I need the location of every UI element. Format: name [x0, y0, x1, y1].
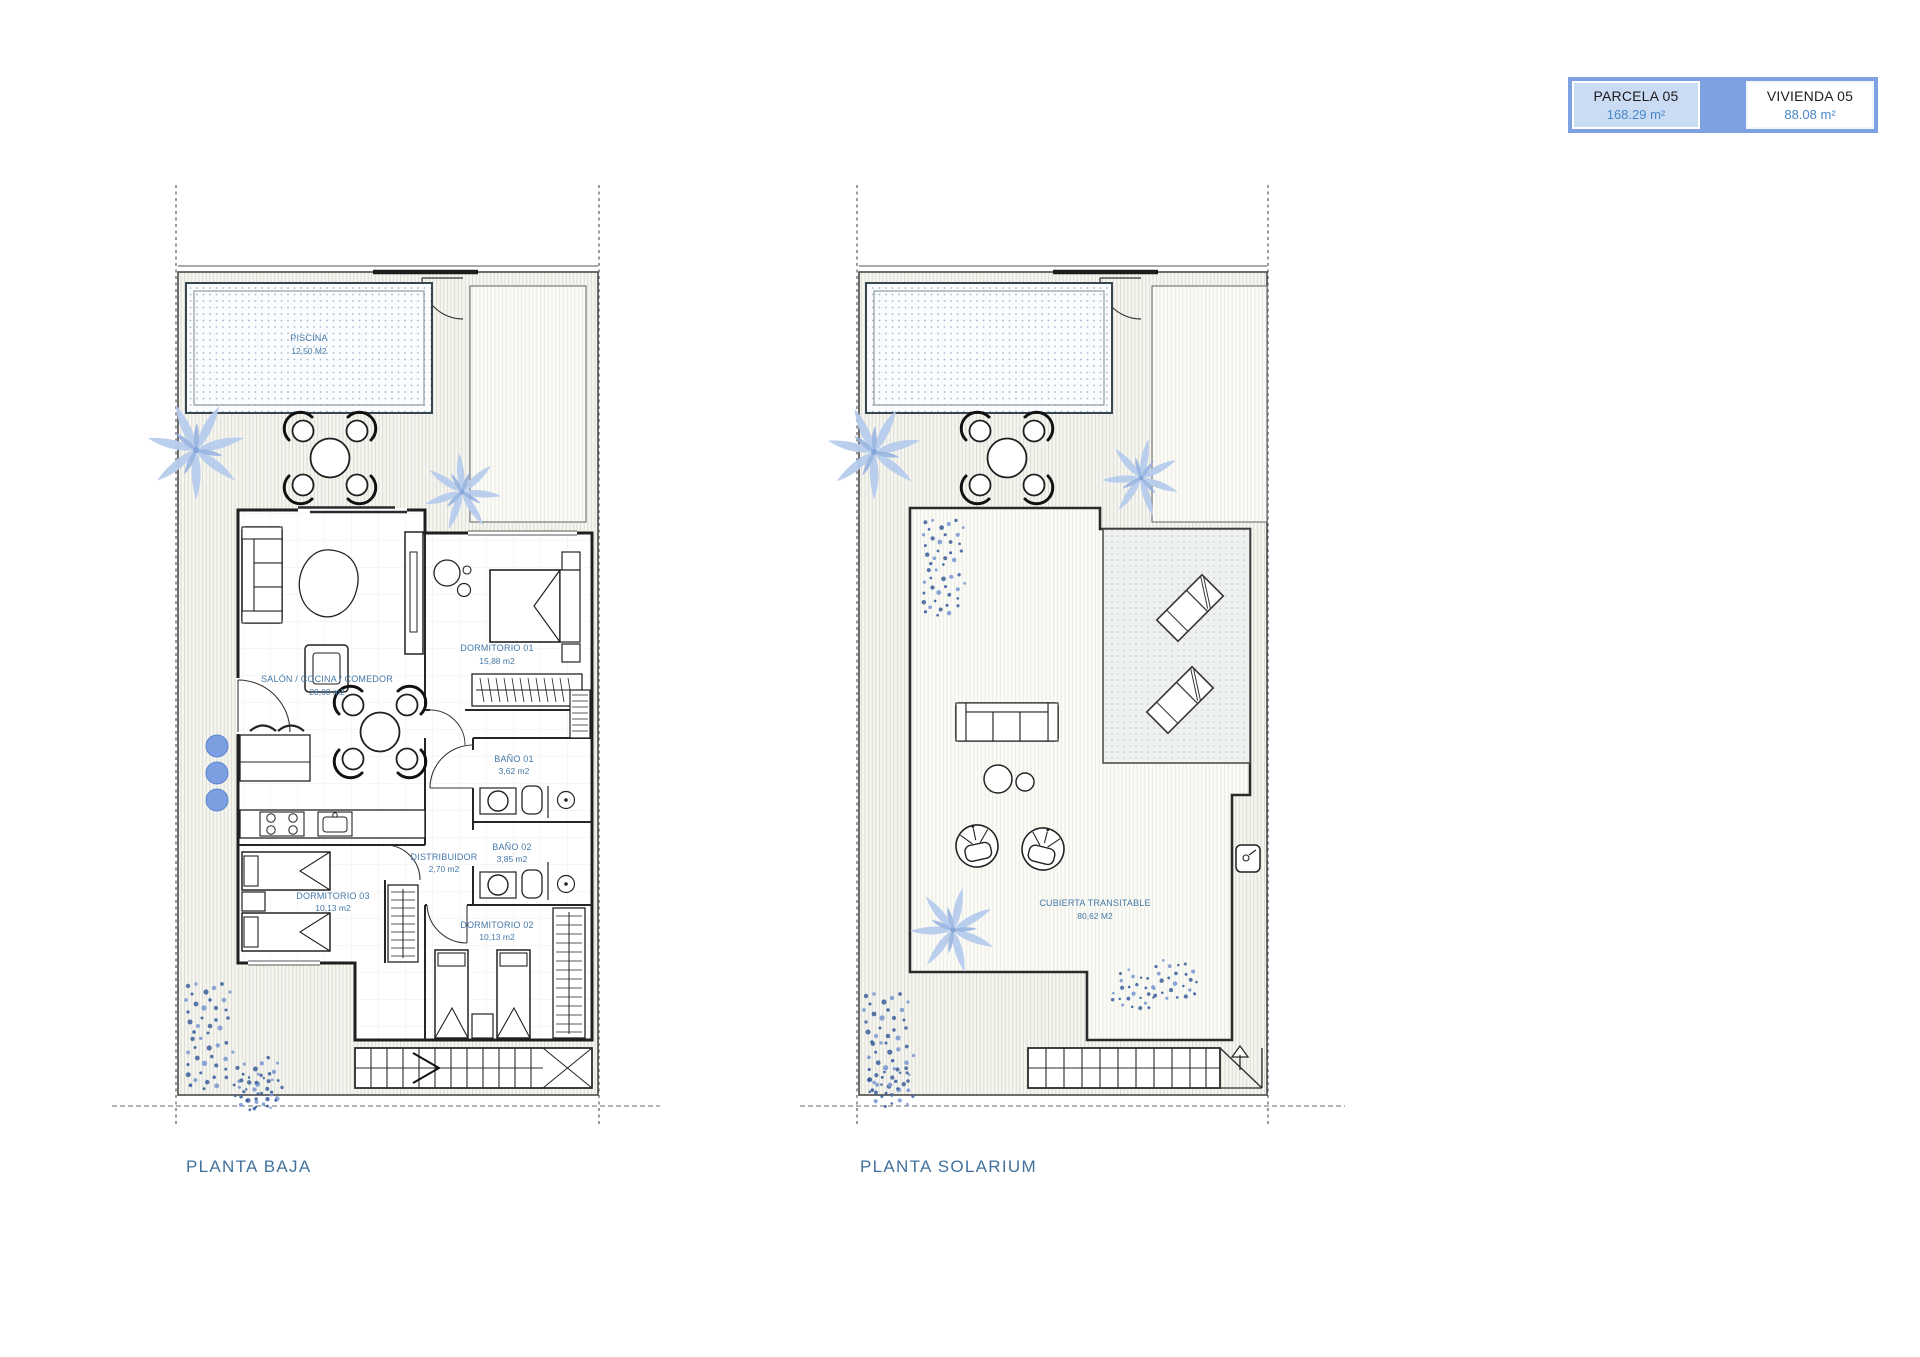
- planta-solarium-plan: CUBIERTA TRANSITABLE 80,62 M2 PLANTA SOL…: [800, 185, 1345, 1176]
- room-area-distribuidor: 2,70 m2: [429, 864, 460, 874]
- coffee-table-icon: [984, 765, 1012, 793]
- room-area-dormitorio-01: 15,88 m2: [479, 656, 515, 666]
- toilet-icon: [522, 786, 542, 814]
- room-label-bano-01: BAÑO 01: [494, 754, 533, 764]
- water-heater-icon: [1236, 845, 1260, 872]
- plans-drawing: PISCINA 12,50 M2: [0, 0, 1920, 1357]
- pool: PISCINA 12,50 M2: [186, 283, 432, 413]
- armchair-icon: [305, 645, 348, 692]
- wardrobe-icon: [388, 885, 418, 962]
- washbasin-icon: [488, 875, 508, 895]
- sofa-icon: [956, 703, 1058, 741]
- floor-plan-sheet: PISCINA 12,50 M2: [0, 0, 1920, 1357]
- vivienda-label: VIVIENDA 05: [1767, 88, 1853, 104]
- room-area-bano-02: 3,85 m2: [497, 854, 528, 864]
- wardrobe-icon: [553, 908, 585, 1038]
- coffee-table-icon: [1016, 773, 1034, 791]
- planta-baja-plan: PISCINA 12,50 M2: [112, 185, 660, 1176]
- nightstand-icon: [242, 892, 265, 911]
- parcela-area-value: 168.29 m²: [1607, 107, 1666, 122]
- room-label-dormitorio-02: DORMITORIO 02: [460, 920, 533, 930]
- plan-title-planta-solarium: PLANTA SOLARIUM: [860, 1157, 1037, 1176]
- stairs: [355, 1048, 592, 1088]
- room-area-dormitorio-02: 10,13 m2: [479, 932, 515, 942]
- room-label-piscina: PISCINA: [290, 333, 327, 343]
- room-area-piscina: 12,50 M2: [291, 346, 327, 356]
- sofa-icon: [242, 527, 282, 623]
- parcela-label: PARCELA 05: [1593, 88, 1678, 104]
- room-area-salon: 28,00 m2: [309, 687, 345, 697]
- room-area-bano-01: 3,62 m2: [499, 766, 530, 776]
- tv-unit-icon: [405, 532, 423, 654]
- parcela-cell: PARCELA 05 168.29 m²: [1572, 81, 1700, 129]
- wardrobe-icon: [472, 674, 582, 706]
- toilet-icon: [522, 870, 542, 898]
- room-label-bano-02: BAÑO 02: [492, 842, 531, 852]
- room-label-distribuidor: DISTRIBUIDOR: [411, 852, 478, 862]
- vivienda-area-value: 88.08 m²: [1784, 107, 1835, 122]
- sun-deck: [1103, 529, 1250, 763]
- room-label-dormitorio-03: DORMITORIO 03: [296, 891, 369, 901]
- stove-icon: [260, 812, 304, 836]
- room-label-dormitorio-01: DORMITORIO 01: [460, 643, 533, 653]
- wardrobe-2-icon: [570, 690, 590, 738]
- parking-area: [470, 286, 586, 522]
- nightstand-icon: [472, 1014, 493, 1038]
- room-area-cubierta: 80,62 M2: [1077, 911, 1113, 921]
- room-label-salon: SALÓN / COCINA / COMEDOR: [261, 674, 393, 684]
- vivienda-cell: VIVIENDA 05 88.08 m²: [1746, 81, 1874, 129]
- plan-title-planta-baja: PLANTA BAJA: [186, 1157, 311, 1176]
- pool: [866, 283, 1112, 413]
- area-summary-legend: PARCELA 05 168.29 m² VIVIENDA 05 88.08 m…: [1568, 77, 1878, 133]
- room-label-cubierta: CUBIERTA TRANSITABLE: [1039, 898, 1150, 908]
- washbasin-icon: [488, 791, 508, 811]
- bushes-icon: [206, 735, 228, 811]
- room-area-dormitorio-03: 10,13 m2: [315, 903, 351, 913]
- sink-icon: [318, 812, 352, 836]
